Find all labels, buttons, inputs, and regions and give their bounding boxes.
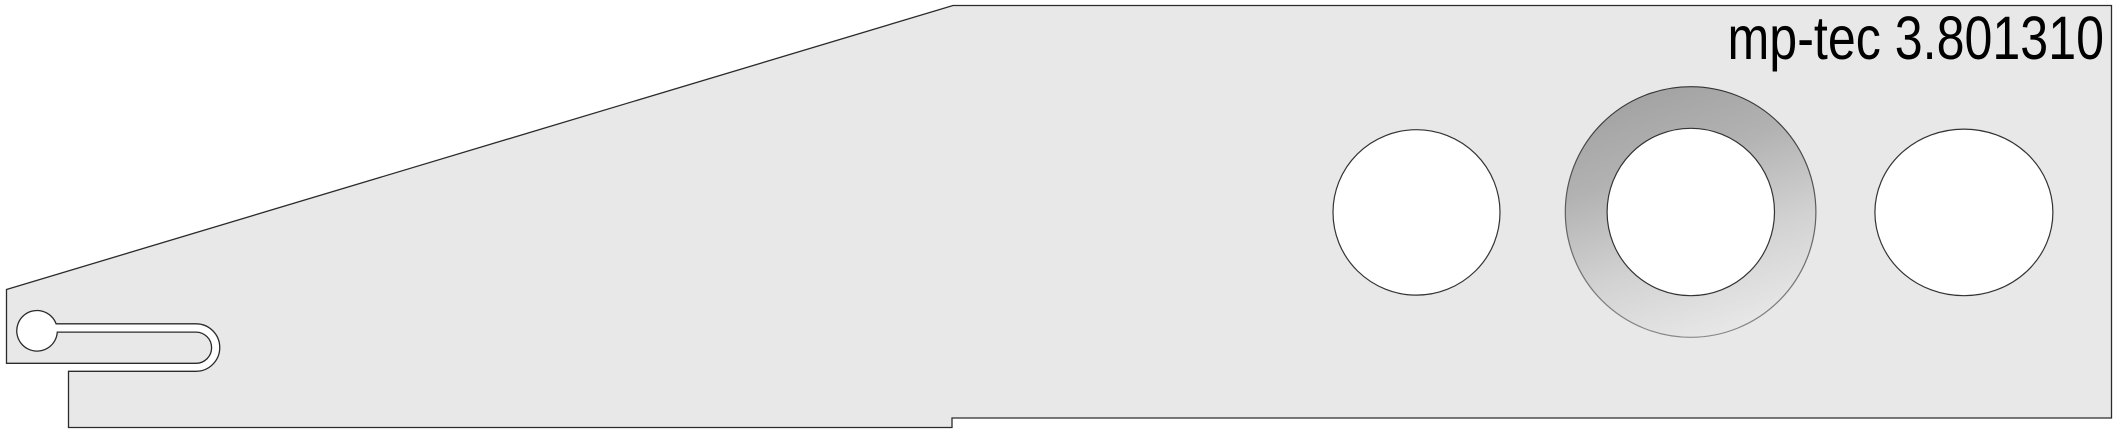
svg-text:mp-tec 3.801310: mp-tec 3.801310	[1728, 4, 2105, 72]
